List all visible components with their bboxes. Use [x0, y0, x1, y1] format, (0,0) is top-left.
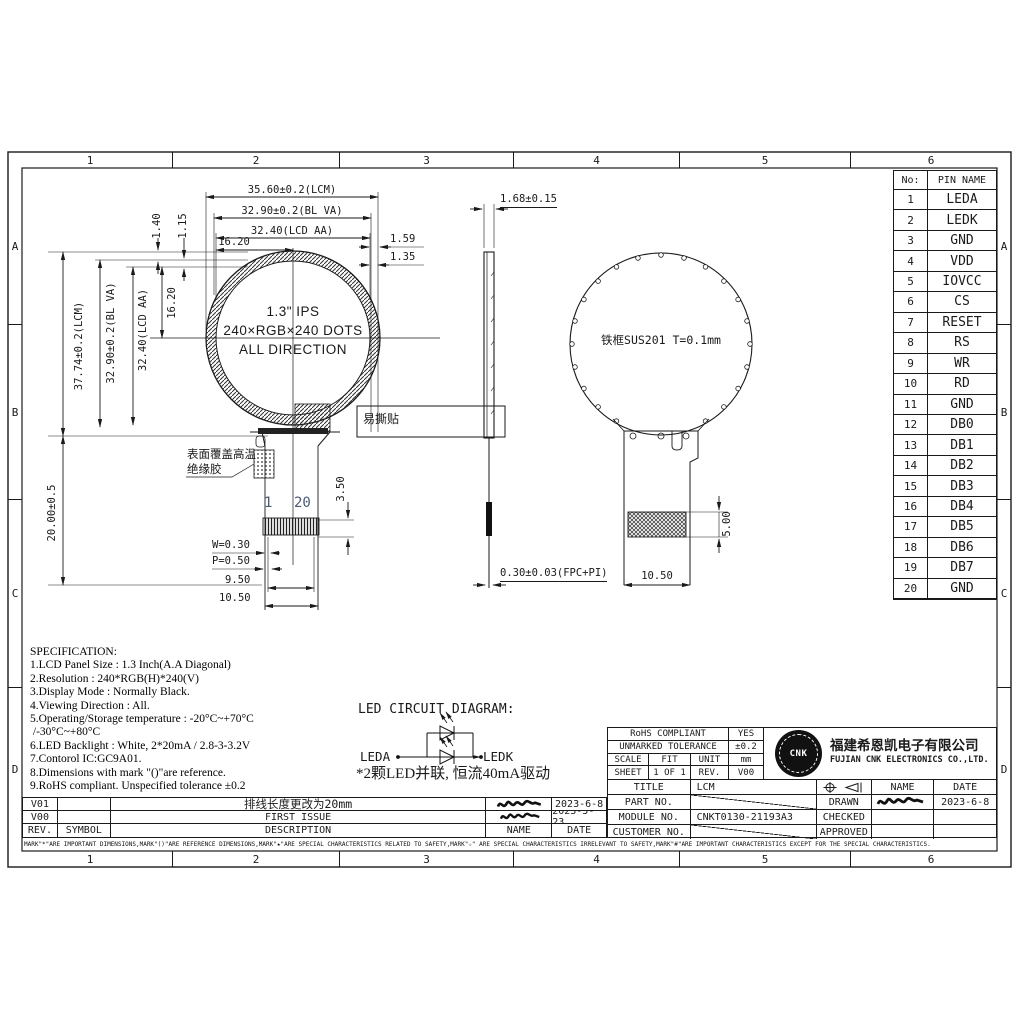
- frame-row-label: B: [997, 325, 1011, 500]
- logo-ring: [779, 734, 818, 773]
- dim-tail-length: 20.00±0.5: [47, 485, 59, 542]
- dim-right-1: 1.59: [390, 234, 415, 246]
- pin-name: DB6: [928, 538, 996, 557]
- dim-tail-width: 10.50: [641, 571, 673, 583]
- revision-row: V00 FIRST ISSUE 2023-5-23: [23, 811, 606, 824]
- frame-col-label: 5: [680, 851, 851, 867]
- pin-number: 14: [894, 456, 928, 475]
- pin-number: 9: [894, 354, 928, 373]
- drawn-signature: [872, 795, 935, 809]
- dim-fpc-width: 10.50: [219, 593, 251, 605]
- pin-name: GND: [928, 579, 996, 598]
- sheet-value: 1 OF 1: [649, 766, 691, 779]
- pin-name: RESET: [928, 313, 996, 332]
- part-no-value: [691, 795, 817, 809]
- frame-col-label: 4: [514, 851, 680, 867]
- dim-top-2: 1.15: [178, 213, 190, 238]
- pin-table-row: 19 DB7: [894, 558, 996, 578]
- pin-number: 11: [894, 395, 928, 414]
- pin-number: 20: [894, 579, 928, 598]
- frame-row-label: A: [997, 168, 1011, 325]
- company-area: CNK 福建希恩凯电子有限公司 FUJIAN CNK ELECTRONICS C…: [764, 728, 998, 779]
- frame-col-label: 1: [8, 851, 173, 867]
- frame-column-labels-bottom: 1 2 3 4 5 6: [8, 851, 1011, 867]
- pin-table-row: 20 GND: [894, 579, 996, 599]
- revision-header-row: REV. SYMBOL DESCRIPTION NAME DATE: [23, 824, 606, 837]
- revision-rev: V00: [23, 811, 58, 823]
- display-resolution-label: 240×RGB×240 DOTS: [223, 324, 362, 339]
- revision-header-description: DESCRIPTION: [111, 824, 487, 837]
- title-block-upper: RoHS COMPLIANT YES UNMARKED TOLERANCE ±0…: [608, 728, 764, 779]
- engineering-drawing-sheet: 1 2 3 4 5 6 1 2 3 4 5 6 A B C D A B C D …: [0, 0, 1019, 1019]
- pin-table-header-name: PIN NAME: [928, 171, 996, 189]
- easy-tear-label: 易撕贴: [363, 413, 399, 426]
- revision-row: V01 排线长度更改为20mm 2023-6-8: [23, 798, 606, 811]
- frame-col-label: 3: [340, 152, 514, 168]
- metal-frame-label: 铁框SUS201 T=0.1mm: [601, 334, 721, 347]
- rohs-label: RoHS COMPLIANT: [608, 728, 729, 740]
- frame-row-label: C: [997, 500, 1011, 688]
- specification-line: 8.Dimensions with mark "()"are reference…: [30, 767, 380, 780]
- sheet-label: SHEET: [608, 766, 649, 779]
- pin-name: DB5: [928, 517, 996, 536]
- pin-number: 6: [894, 292, 928, 311]
- frame-col-label: 2: [173, 152, 340, 168]
- pin-table-row: 10 RD: [894, 374, 996, 394]
- pin-number: 4: [894, 251, 928, 270]
- approved-date: [934, 825, 996, 839]
- dim-connector-offset: 3.50: [336, 476, 348, 501]
- pin-name: RD: [928, 374, 996, 393]
- pin-table-row: 2 LEDK: [894, 210, 996, 230]
- revision-header-name: NAME: [486, 824, 552, 837]
- pin-name: DB7: [928, 558, 996, 577]
- revision-symbol: [58, 798, 111, 810]
- pin-first-number: 1: [264, 496, 272, 511]
- unit-label: UNIT: [691, 754, 729, 765]
- pin-number: 17: [894, 517, 928, 536]
- led-circuit-diagram: [397, 712, 483, 764]
- company-logo: CNK: [775, 730, 822, 777]
- dim-height-blva: 32.90±0.2(BL VA): [106, 282, 118, 383]
- dim-width-blva: 32.90±0.2(BL VA): [241, 206, 342, 218]
- pin-number: 19: [894, 558, 928, 577]
- specification-line: 4.Viewing Direction : All.: [30, 700, 380, 713]
- rev-value: V00: [729, 766, 764, 779]
- frame-col-label: 5: [680, 152, 851, 168]
- pin-name: WR: [928, 354, 996, 373]
- specification-line: 5.Operating/Storage temperature : -20°C~…: [30, 713, 380, 726]
- dim-top-1: 1.40: [152, 213, 164, 238]
- pin-name: DB0: [928, 415, 996, 434]
- pin-table-row: 9 WR: [894, 354, 996, 374]
- pin-name: DB2: [928, 456, 996, 475]
- dim-width-lcdaa: 32.40(LCD AA): [251, 226, 333, 238]
- pin-number: 16: [894, 497, 928, 516]
- pin-number: 10: [894, 374, 928, 393]
- pin-table-row: 6 CS: [894, 292, 996, 312]
- pin-table-row: 18 DB6: [894, 538, 996, 558]
- display-direction-label: ALL DIRECTION: [239, 343, 347, 358]
- projection-symbol-icon: [817, 780, 872, 794]
- dim-thickness: 1.68±0.15: [500, 194, 557, 208]
- pin-table-row: 15 DB3: [894, 476, 996, 496]
- checked-label: CHECKED: [817, 810, 872, 824]
- module-no-label: MODULE NO.: [608, 810, 691, 824]
- side-view: [470, 204, 508, 588]
- module-no-value: CNKT0130-21193A3: [691, 810, 817, 824]
- dim-pin-width: W=0.30: [212, 540, 250, 552]
- revision-date: 2023-5-23: [552, 811, 606, 823]
- revision-header-rev: REV.: [23, 824, 58, 837]
- unit-value: mm: [729, 754, 764, 765]
- frame-row-label: B: [8, 325, 22, 500]
- checked-date: [934, 810, 996, 824]
- part-no-label: PART NO.: [608, 795, 691, 809]
- revision-table: V01 排线长度更改为20mm 2023-6-8 V00 FIRST ISSUE…: [22, 797, 607, 838]
- specification-line: SPECIFICATION:: [30, 646, 380, 659]
- pin-table-row: 11 GND: [894, 395, 996, 415]
- footer-note: MARK"*"ARE IMPORTANT DIMENSIONS,MARK"()"…: [24, 841, 931, 848]
- specification-block: SPECIFICATION:1.LCD Panel Size : 1.3 Inc…: [30, 646, 380, 793]
- frame-col-label: 2: [173, 851, 340, 867]
- pin-number: 5: [894, 272, 928, 291]
- scale-value: FIT: [649, 754, 691, 765]
- frame-col-label: 6: [851, 152, 1011, 168]
- revision-signature: [486, 811, 552, 823]
- revision-description: 排线长度更改为20mm: [111, 798, 487, 810]
- tolerance-value: ±0.2: [729, 741, 764, 753]
- pin-name: DB1: [928, 435, 996, 454]
- dim-pins-span: 9.50: [225, 575, 250, 587]
- frame-row-label: A: [8, 168, 22, 325]
- dim-height-half: 16.20: [167, 287, 179, 319]
- frame-col-label: 6: [851, 851, 1011, 867]
- pin-name: LEDK: [928, 210, 996, 229]
- specification-line: 6.LED Backlight : White, 2*20mA / 2.8-3-…: [30, 740, 380, 753]
- pin-name: VDD: [928, 251, 996, 270]
- specification-line: 2.Resolution : 240*RGB(H)*240(V): [30, 673, 380, 686]
- pin-name: IOVCC: [928, 272, 996, 291]
- specification-line: 1.LCD Panel Size : 1.3 Inch(A.A Diagonal…: [30, 659, 380, 672]
- front-view: [150, 248, 505, 610]
- pin-name: CS: [928, 292, 996, 311]
- specification-line: 9.RoHS compliant. Unspecified tolerance …: [30, 780, 380, 793]
- approved-signature: [872, 825, 935, 839]
- rohs-value: YES: [729, 728, 764, 740]
- pin-table-row: 4 VDD: [894, 251, 996, 271]
- specification-line: 7.Contorol IC:GC9A01.: [30, 753, 380, 766]
- pin-table-row: 16 DB4: [894, 497, 996, 517]
- title-block-lower: TITLE LCM NAME DATE PART NO. DRAWN 2023-…: [608, 779, 996, 839]
- dim-pin-pitch: P=0.50: [212, 556, 250, 568]
- pin-table-row: 12 DB0: [894, 415, 996, 435]
- frame-col-label: 4: [514, 152, 680, 168]
- revision-signature: [486, 798, 552, 810]
- pin-table-row: 17 DB5: [894, 517, 996, 537]
- pin-table: No: PIN NAME 1 LEDA 2 LEDK 3 GND 4 VDD 5…: [893, 170, 997, 600]
- drawn-label: DRAWN: [817, 795, 872, 809]
- title-block: RoHS COMPLIANT YES UNMARKED TOLERANCE ±0…: [607, 727, 997, 838]
- frame-row-labels-right: A B C D: [997, 168, 1011, 851]
- approved-label: APPROVED: [817, 825, 872, 839]
- pin-name: GND: [928, 395, 996, 414]
- dim-width-lcm: 35.60±0.2(LCM): [248, 185, 337, 197]
- pin-name: DB4: [928, 497, 996, 516]
- title-label: TITLE: [608, 780, 691, 794]
- pin-number: 2: [894, 210, 928, 229]
- frame-row-label: D: [8, 688, 22, 851]
- drawn-date: 2023-6-8: [934, 795, 996, 809]
- led-circuit-note: *2颗LED并联, 恒流40mA驱动: [356, 766, 550, 783]
- pin-last-number: 20: [294, 496, 311, 511]
- pin-number: 13: [894, 435, 928, 454]
- scale-label: SCALE: [608, 754, 649, 765]
- pin-number: 18: [894, 538, 928, 557]
- revision-header-date: DATE: [552, 824, 606, 837]
- dim-fpc-thickness: 0.30±0.03(FPC+PI): [500, 568, 607, 582]
- pin-table-header: No: PIN NAME: [894, 171, 996, 190]
- specification-line: /-30°C~+80°C: [30, 726, 380, 739]
- pin-table-header-no: No:: [894, 171, 928, 189]
- led-anode-label: LEDA: [360, 750, 390, 764]
- checked-signature: [872, 810, 935, 824]
- frame-column-labels-top: 1 2 3 4 5 6: [8, 152, 1011, 168]
- pin-number: 8: [894, 333, 928, 352]
- customer-no-value: [691, 825, 817, 839]
- led-cathode-label: LEDK: [483, 750, 513, 764]
- pin-number: 3: [894, 231, 928, 250]
- pin-table-row: 8 RS: [894, 333, 996, 353]
- revision-date: 2023-6-8: [552, 798, 606, 810]
- frame-row-labels-left: A B C D: [8, 168, 22, 851]
- pin-table-row: 1 LEDA: [894, 190, 996, 210]
- pin-table-row: 3 GND: [894, 231, 996, 251]
- pin-table-row: 5 IOVCC: [894, 272, 996, 292]
- company-name-en: FUJIAN CNK ELECTRONICS CO.,LTD.: [830, 755, 989, 765]
- frame-row-label: C: [8, 500, 22, 688]
- glue-label-line1: 表面覆盖高温: [187, 448, 256, 461]
- led-circuit-title: LED CIRCUIT DIAGRAM:: [358, 703, 515, 717]
- frame-row-label: D: [997, 688, 1011, 851]
- revision-header-symbol: SYMBOL: [58, 824, 111, 837]
- specification-line: 3.Display Mode : Normally Black.: [30, 686, 380, 699]
- pin-name: DB3: [928, 476, 996, 495]
- customer-no-label: CUSTOMER NO.: [608, 825, 691, 839]
- revision-description: FIRST ISSUE: [111, 811, 487, 823]
- pin-table-row: 13 DB1: [894, 435, 996, 455]
- display-size-label: 1.3" IPS: [266, 305, 319, 320]
- pin-number: 7: [894, 313, 928, 332]
- dim-height-lcdaa: 32.40(LCD AA): [138, 289, 150, 371]
- pin-name: GND: [928, 231, 996, 250]
- dim-right-2: 1.35: [390, 252, 415, 264]
- pin-table-row: 7 RESET: [894, 313, 996, 333]
- pin-table-row: 14 DB2: [894, 456, 996, 476]
- rev-label: REV.: [691, 766, 729, 779]
- title-value: LCM: [691, 780, 817, 794]
- revision-rev: V01: [23, 798, 58, 810]
- dim-width-half: 16.20: [218, 237, 250, 249]
- pin-number: 12: [894, 415, 928, 434]
- date-label: DATE: [934, 780, 996, 794]
- pin-number: 1: [894, 190, 928, 209]
- frame-col-label: 3: [340, 851, 514, 867]
- dim-height-lcm: 37.74±0.2(LCM): [74, 302, 86, 391]
- name-label: NAME: [872, 780, 935, 794]
- revision-symbol: [58, 811, 111, 823]
- pin-number: 15: [894, 476, 928, 495]
- frame-col-label: 1: [8, 152, 173, 168]
- dim-stiffener-height: 5.00: [722, 511, 734, 536]
- tolerance-label: UNMARKED TOLERANCE: [608, 741, 729, 753]
- pin-name: LEDA: [928, 190, 996, 209]
- pin-name: RS: [928, 333, 996, 352]
- glue-label-line2: 绝缘胶: [187, 463, 222, 476]
- company-name-cn: 福建希恩凯电子有限公司: [830, 734, 979, 754]
